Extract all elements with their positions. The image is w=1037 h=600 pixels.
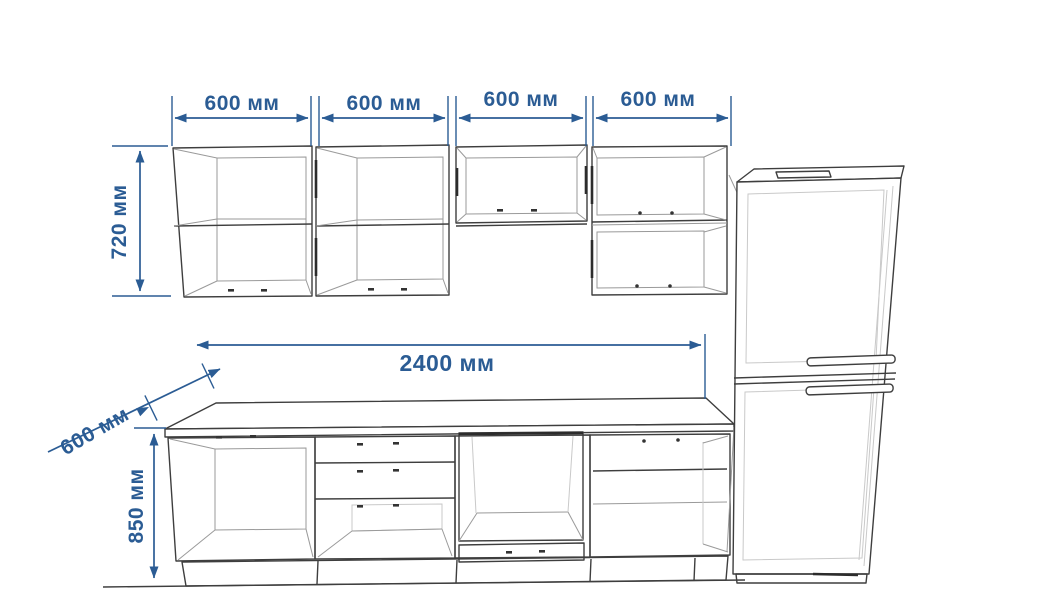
dim-wall-widths: 600 мм 600 мм 600 мм 600 мм	[172, 88, 731, 146]
wall-cabinet-2	[316, 145, 449, 296]
kitchen-dimension-drawing: 600 мм 600 мм 600 мм 600 мм 720 мм 2400 …	[0, 0, 1037, 600]
wall-cabinet-4	[592, 146, 727, 295]
wall-cabinet-3	[456, 145, 587, 226]
dim-wall-height: 720 мм	[108, 146, 171, 296]
base-cabinet-oven	[455, 432, 590, 562]
dim-label-depth: 600 мм	[57, 403, 133, 460]
dim-label-width-1: 600 мм	[205, 92, 280, 115]
wall-cabinet-1	[173, 146, 312, 297]
dim-label-total-length: 2400 мм	[399, 350, 494, 376]
base-cabinet-open	[168, 435, 315, 561]
floor-line	[103, 580, 745, 587]
dim-label-width-4: 600 мм	[621, 88, 696, 111]
refrigerator	[729, 166, 904, 583]
dim-depth: 600 мм	[48, 364, 220, 461]
dim-label-wall-height: 720 мм	[108, 185, 131, 260]
dim-total-length: 2400 мм	[197, 334, 705, 399]
dim-label-base-height: 850 мм	[125, 469, 148, 544]
kitchen-elevation-svg: 600 мм 600 мм 600 мм 600 мм 720 мм 2400 …	[0, 0, 1037, 600]
dim-label-width-2: 600 мм	[347, 92, 422, 115]
base-cabinet-drawers	[315, 436, 455, 559]
dim-base-height: 850 мм	[125, 428, 166, 578]
countertop	[165, 398, 734, 437]
base-cabinet-shelves	[590, 427, 734, 557]
dim-label-width-3: 600 мм	[484, 88, 559, 111]
